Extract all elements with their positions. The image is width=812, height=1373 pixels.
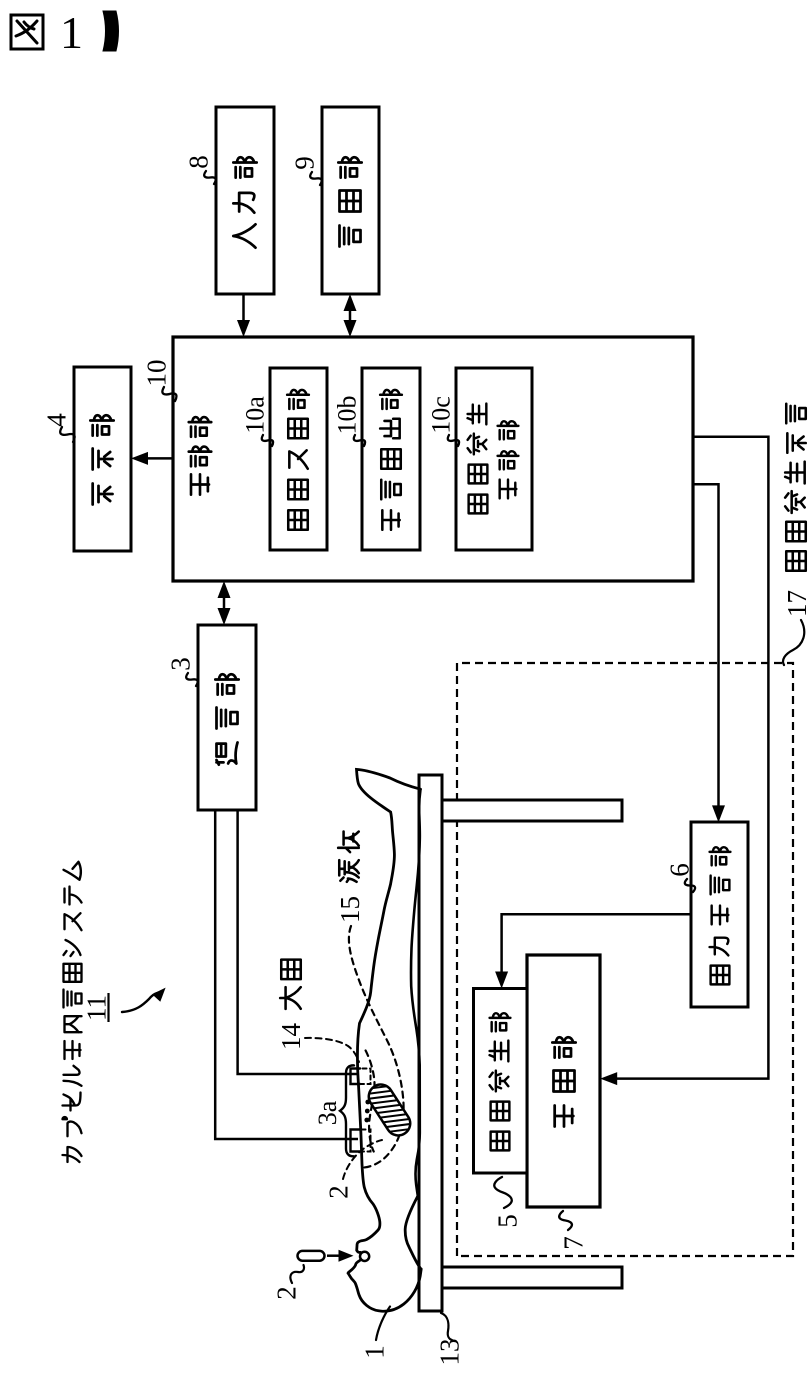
svg-text:2: 2 [272, 1286, 302, 1300]
svg-text:4: 4 [42, 413, 72, 427]
svg-text:10b: 10b [332, 396, 361, 435]
svg-text:3a: 3a [313, 1100, 342, 1125]
svg-text:3: 3 [166, 657, 196, 671]
svg-text:11: 11 [82, 995, 112, 1021]
svg-text:1: 1 [360, 1345, 390, 1359]
svg-text:1: 1 [60, 7, 83, 58]
svg-text:6: 6 [665, 863, 695, 877]
svg-text:8: 8 [184, 155, 214, 169]
svg-text:10a: 10a [240, 396, 269, 434]
svg-text:10c: 10c [426, 396, 455, 434]
svg-text:13: 13 [435, 1339, 465, 1366]
svg-text:2: 2 [324, 1185, 354, 1199]
svg-text:10: 10 [142, 360, 172, 387]
svg-text:15: 15 [335, 896, 365, 923]
svg-text:17: 17 [782, 590, 812, 617]
svg-text:9: 9 [290, 156, 320, 170]
svg-text:14: 14 [276, 1023, 306, 1051]
svg-text:5: 5 [493, 1214, 523, 1228]
svg-text:7: 7 [559, 1236, 589, 1250]
